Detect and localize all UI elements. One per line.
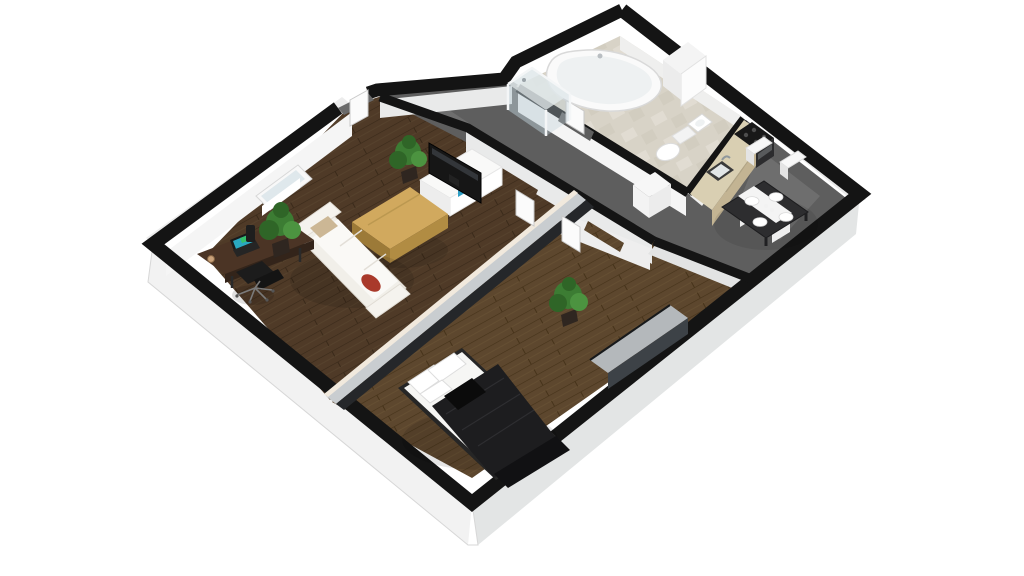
bathroom-floor <box>516 36 744 192</box>
sofa <box>290 202 414 318</box>
desk-mug <box>208 256 215 263</box>
floor-plan-render <box>0 0 1024 576</box>
bathroom-kitchen-wall <box>688 119 744 193</box>
bed-duvet <box>432 364 556 478</box>
entrance-door-panel <box>350 90 368 126</box>
wardrobe <box>590 305 688 389</box>
kitchen-sink <box>706 156 734 181</box>
exterior-wall-band <box>153 10 860 503</box>
floor-shading <box>420 100 820 240</box>
desk-speaker <box>246 225 255 242</box>
desk <box>197 220 314 288</box>
corner-bathtub <box>547 50 662 111</box>
dining-table <box>722 181 808 246</box>
living-room-furniture <box>197 143 502 318</box>
tv-unit <box>420 143 502 216</box>
bed <box>398 348 570 488</box>
exterior-wall-band-top <box>368 10 622 93</box>
living-window <box>256 165 312 216</box>
bed-pillows <box>408 353 466 403</box>
corridor-living-wall <box>380 97 654 241</box>
foot-bench <box>494 436 570 488</box>
fridge <box>633 172 671 218</box>
bed-black-pillow <box>444 378 486 410</box>
bedroom-furniture <box>398 305 688 488</box>
bedroom-floor <box>332 199 754 478</box>
beige-pillow <box>310 216 338 238</box>
coffee-table <box>352 187 448 268</box>
plant-desk <box>259 202 301 258</box>
plant-tv-corner <box>389 135 427 184</box>
dining-chair <box>730 137 806 243</box>
windows <box>256 42 706 216</box>
bathroom-door-panel <box>566 100 584 134</box>
living-room-floor <box>205 96 580 400</box>
floor-plan-canvas <box>0 0 1024 576</box>
potted-plants <box>259 135 588 327</box>
bathroom-fixtures <box>508 50 712 164</box>
toilet <box>654 126 696 164</box>
dining-set <box>714 137 818 250</box>
wall-outline <box>153 10 860 503</box>
red-pillow <box>358 271 384 296</box>
corridor-floor <box>383 81 700 240</box>
bathroom-window-bay <box>663 42 706 106</box>
tv <box>429 143 481 203</box>
bathroom-sink <box>688 114 712 132</box>
kitchen-floor <box>656 120 846 278</box>
plant-bedroom <box>549 277 588 327</box>
building-plinth <box>146 6 866 545</box>
kitchen <box>690 120 818 250</box>
living-bedroom-partition <box>324 190 594 410</box>
bathroom-corridor-wall <box>518 88 688 193</box>
kitchen-bedroom-wall <box>654 241 754 280</box>
bedroom-door-panel <box>562 216 580 252</box>
doors <box>338 90 624 252</box>
stove <box>734 122 774 168</box>
office-chair <box>232 261 284 305</box>
shower <box>508 68 570 136</box>
interior-wall-faces <box>166 36 756 292</box>
kitchen-counter <box>690 120 774 226</box>
living-door-panel <box>516 190 534 226</box>
laptop <box>230 231 260 257</box>
tv-accent-shelf <box>458 175 477 197</box>
